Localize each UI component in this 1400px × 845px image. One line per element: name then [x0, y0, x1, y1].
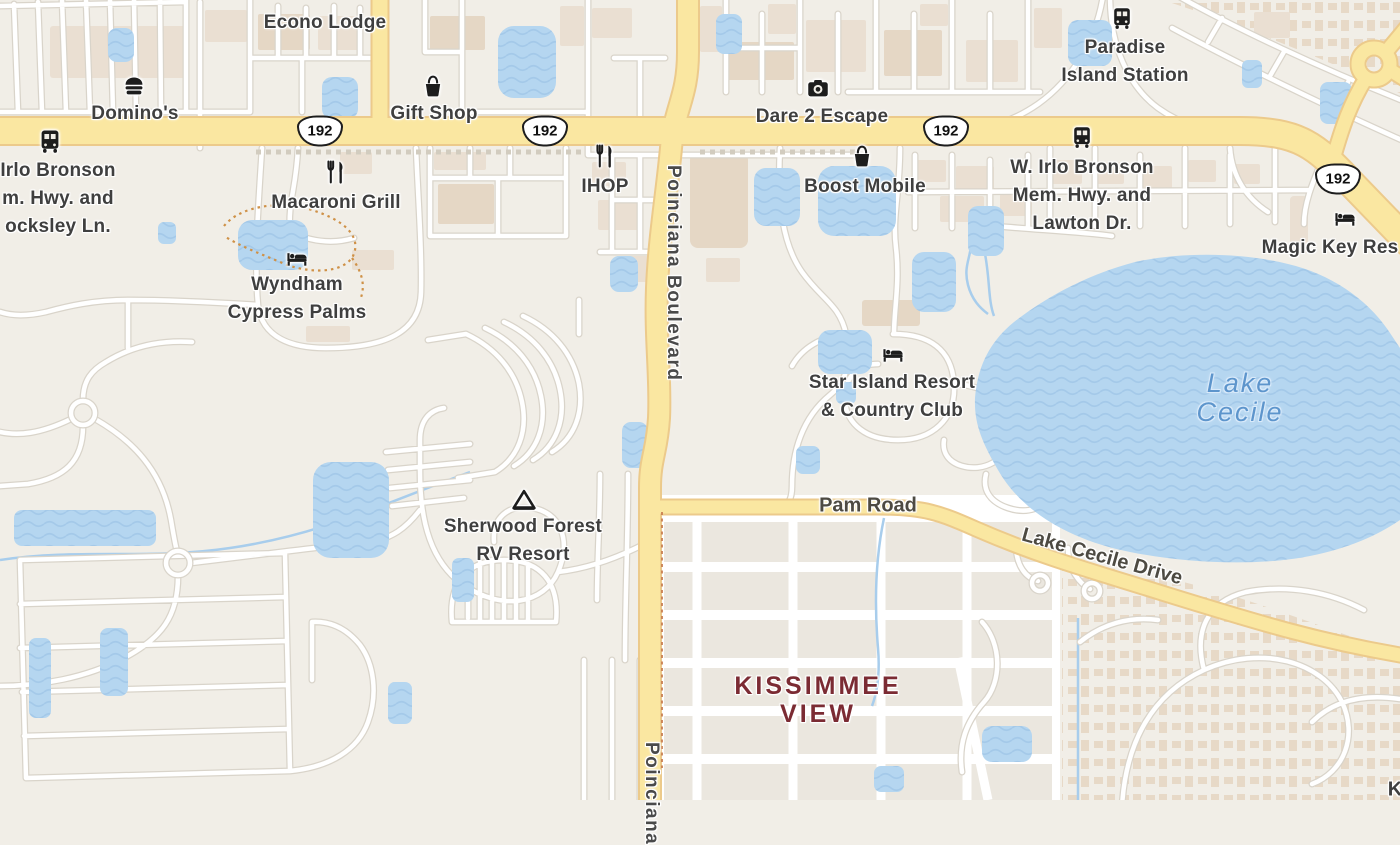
bed-icon[interactable]: [285, 246, 309, 270]
poi-label-gift-shop[interactable]: Gift Shop: [390, 100, 477, 128]
map-viewport[interactable]: 192 192 192 192 Poinciana Boulevard Poin…: [0, 0, 1400, 800]
area-label-bottom-right-partial: K: [1388, 779, 1400, 802]
poi-label-irlo-bronson-locksley[interactable]: Irlo Bronson m. Hwy. and ocksley Ln.: [0, 157, 115, 241]
restaurant-icon[interactable]: [592, 143, 618, 169]
bus-icon[interactable]: [36, 127, 64, 155]
road-label-poinciana-south-partial: Poinciana: [640, 742, 662, 845]
water-label-lake-cecile: Lake Cecile: [1196, 369, 1283, 427]
poi-label-ihop[interactable]: IHOP: [581, 173, 628, 201]
poi-label-econo-lodge[interactable]: Econo Lodge: [264, 9, 387, 37]
restaurant-icon[interactable]: [323, 159, 349, 185]
poi-label-sherwood-forest-rv[interactable]: Sherwood Forest RV Resort: [444, 513, 602, 569]
poi-label-star-island-resort[interactable]: Star Island Resort & Country Club: [809, 369, 975, 425]
poi-label-magic-key-resort[interactable]: Magic Key Res: [1262, 234, 1399, 262]
poi-label-paradise-island-station[interactable]: Paradise Island Station: [1061, 34, 1188, 90]
poi-label-wyndham-cypress-palms[interactable]: Wyndham Cypress Palms: [228, 271, 367, 327]
road-label-poinciana-boulevard: Poinciana Boulevard: [662, 165, 684, 381]
area-label-kissimmee-view: KISSIMMEE VIEW: [734, 672, 901, 728]
shopping-basket-icon[interactable]: [849, 143, 875, 169]
poi-label-macaroni-grill[interactable]: Macaroni Grill: [271, 189, 401, 217]
road-label-pam-road: Pam Road: [819, 495, 917, 518]
camera-icon[interactable]: [805, 75, 831, 101]
map-canvas[interactable]: [0, 0, 1400, 800]
tent-icon[interactable]: [511, 487, 537, 513]
bus-icon[interactable]: [1109, 5, 1135, 31]
poi-label-dare-2-escape[interactable]: Dare 2 Escape: [756, 103, 889, 131]
burger-icon[interactable]: [121, 73, 147, 99]
bed-icon[interactable]: [881, 342, 905, 366]
bed-icon[interactable]: [1333, 206, 1357, 230]
poi-label-w-irlo-bronson-lawton[interactable]: W. Irlo Bronson Mem. Hwy. and Lawton Dr.: [1010, 154, 1153, 238]
poi-label-dominos[interactable]: Domino's: [91, 100, 178, 128]
shopping-basket-icon[interactable]: [420, 73, 446, 99]
poi-label-boost-mobile[interactable]: Boost Mobile: [804, 173, 926, 201]
bus-icon[interactable]: [1069, 124, 1095, 150]
